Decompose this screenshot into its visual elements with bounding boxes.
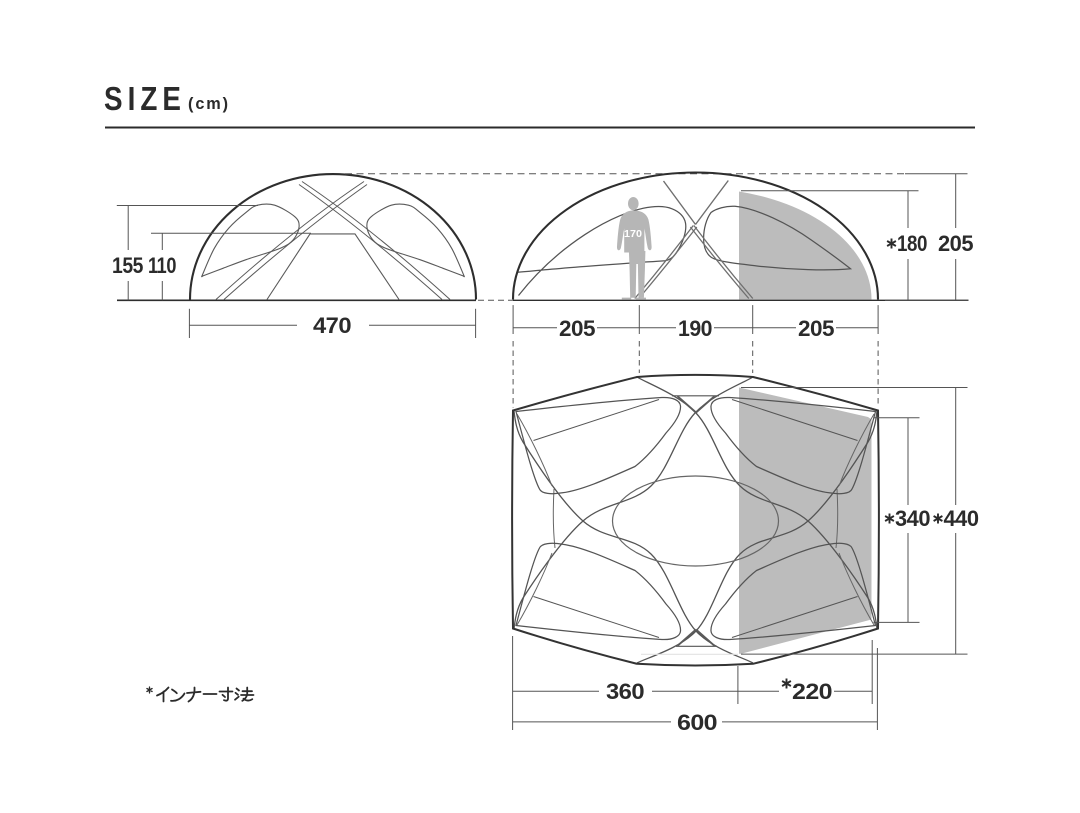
svg-text:205: 205 <box>798 316 834 341</box>
svg-text:180: 180 <box>897 231 927 256</box>
svg-text:155: 155 <box>112 253 143 278</box>
svg-text:440: 440 <box>944 506 979 531</box>
svg-text:220: 220 <box>792 679 832 704</box>
svg-text:340: 340 <box>895 506 930 531</box>
svg-text:110: 110 <box>148 253 176 278</box>
svg-text:205: 205 <box>938 231 973 256</box>
svg-text:360: 360 <box>606 679 644 704</box>
svg-text:600: 600 <box>677 710 717 735</box>
svg-text:(cm): (cm) <box>188 94 230 113</box>
svg-text:SIZE: SIZE <box>104 80 186 117</box>
svg-text:190: 190 <box>678 316 712 341</box>
svg-text:470: 470 <box>313 313 351 338</box>
svg-text:170: 170 <box>624 228 642 240</box>
svg-text:205: 205 <box>559 316 595 341</box>
